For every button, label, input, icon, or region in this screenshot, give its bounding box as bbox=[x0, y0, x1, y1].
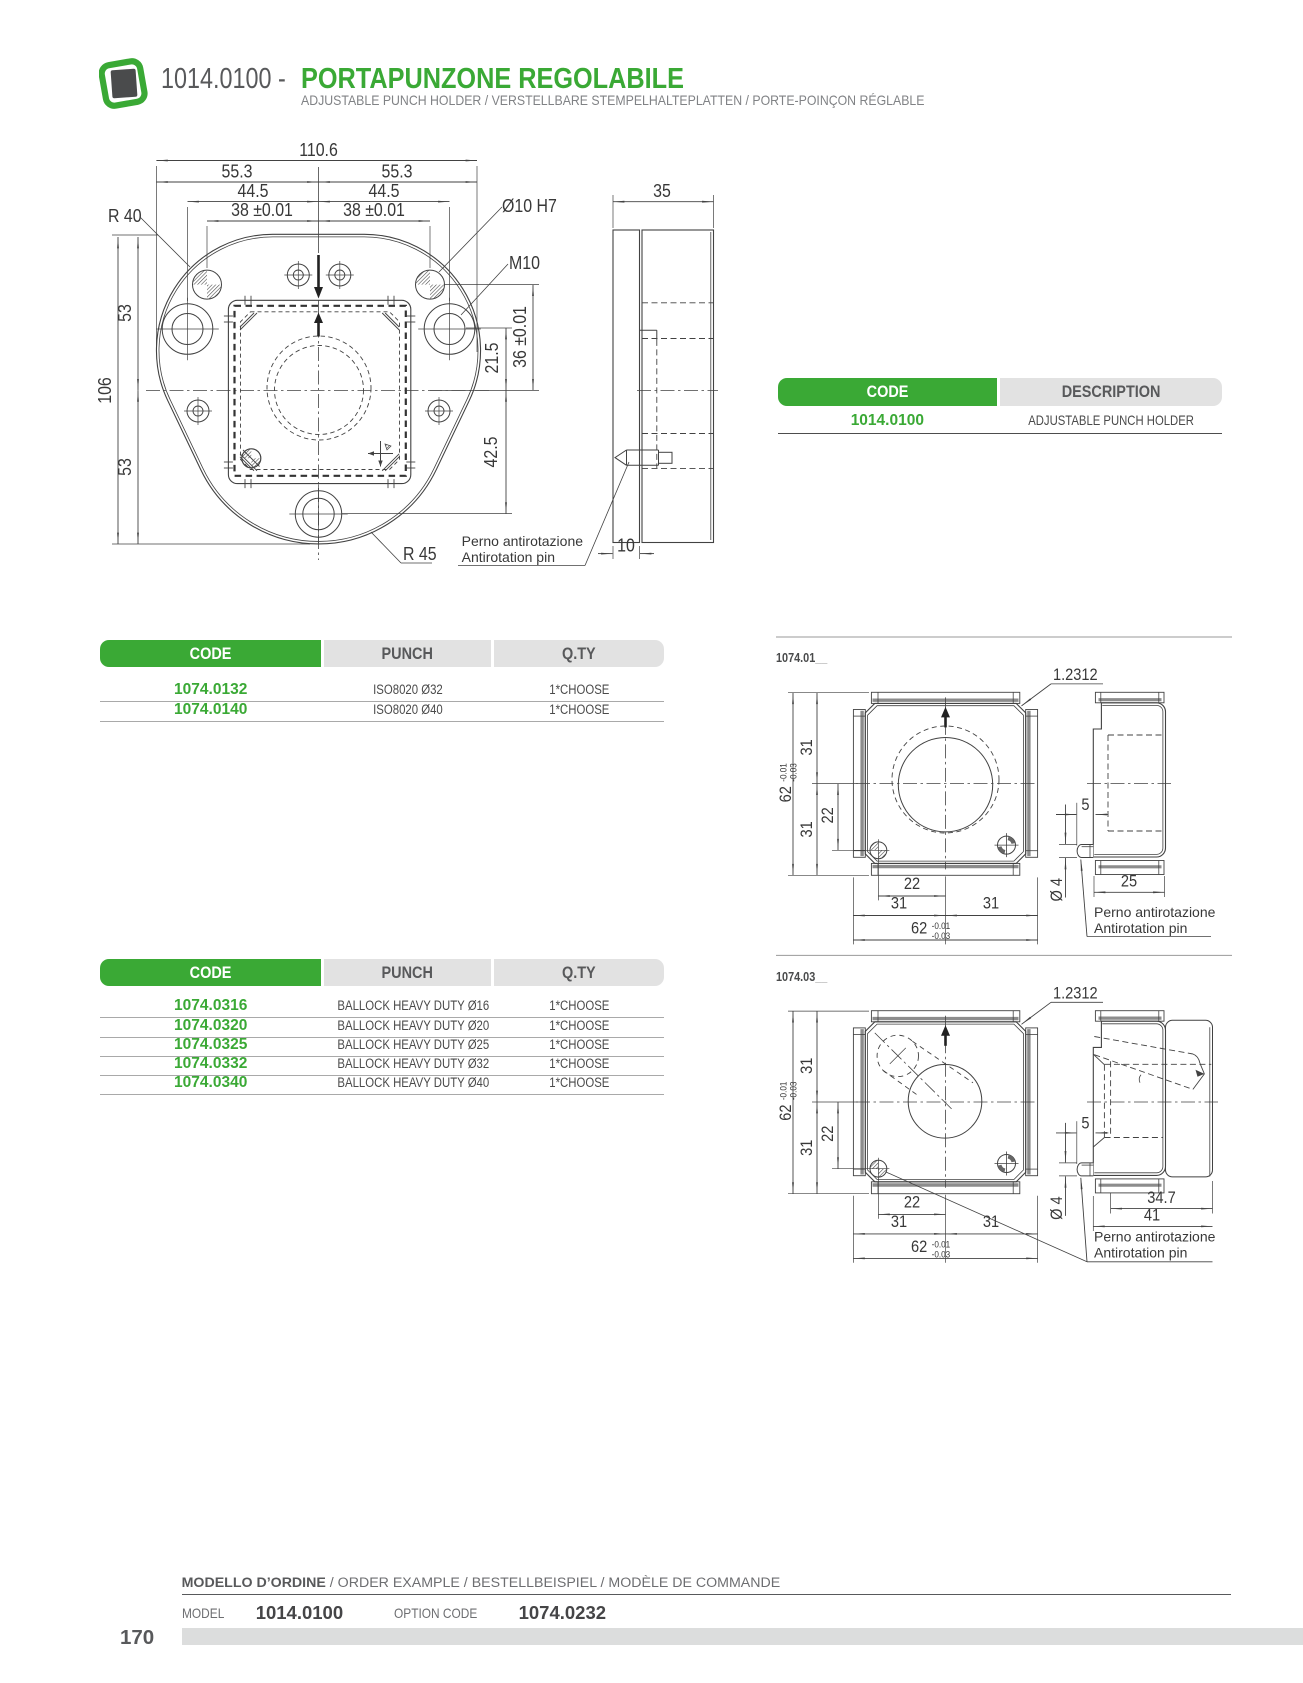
svg-text:41: 41 bbox=[1144, 1207, 1160, 1225]
svg-text:Perno antirotazione: Perno antirotazione bbox=[1094, 1229, 1216, 1245]
svg-text:-0.03: -0.03 bbox=[932, 930, 951, 941]
svg-text:R 45: R 45 bbox=[403, 543, 437, 564]
svg-text:10: 10 bbox=[617, 534, 635, 555]
svg-text:M10: M10 bbox=[509, 252, 540, 273]
svg-text:31: 31 bbox=[798, 739, 816, 755]
svg-text:53: 53 bbox=[114, 458, 135, 476]
svg-text:Ø 4: Ø 4 bbox=[1048, 1196, 1066, 1220]
svg-text:62: 62 bbox=[911, 1238, 927, 1256]
svg-text:36 ±0.01: 36 ±0.01 bbox=[509, 306, 530, 368]
svg-text:22: 22 bbox=[819, 1126, 837, 1142]
svg-text:31: 31 bbox=[798, 1140, 816, 1156]
svg-text:21.5: 21.5 bbox=[481, 343, 502, 374]
svg-text:31: 31 bbox=[798, 1058, 816, 1074]
svg-text:53: 53 bbox=[114, 304, 135, 322]
svg-text:Ø 4: Ø 4 bbox=[1048, 878, 1066, 902]
svg-text:106: 106 bbox=[95, 377, 115, 404]
svg-text:Antirotation pin: Antirotation pin bbox=[1094, 920, 1187, 936]
svg-text:Perno antirotazione: Perno antirotazione bbox=[462, 533, 584, 549]
svg-text:Antirotation pin: Antirotation pin bbox=[462, 549, 555, 565]
svg-text:Ø10 H7: Ø10 H7 bbox=[502, 195, 557, 216]
svg-text:1074.01__: 1074.01__ bbox=[776, 650, 828, 665]
svg-text:1.2312: 1.2312 bbox=[1053, 666, 1098, 684]
svg-text:62: 62 bbox=[777, 1104, 795, 1120]
svg-text:35: 35 bbox=[653, 180, 671, 201]
svg-text:-0.03: -0.03 bbox=[788, 763, 799, 782]
svg-text:38 ±0.01: 38 ±0.01 bbox=[231, 199, 293, 220]
svg-text:55.3: 55.3 bbox=[382, 160, 413, 181]
svg-text:5: 5 bbox=[1081, 1114, 1089, 1132]
svg-text:-0.03: -0.03 bbox=[788, 1081, 799, 1100]
svg-text:1074.03__: 1074.03__ bbox=[776, 969, 828, 984]
svg-text:R 40: R 40 bbox=[108, 205, 142, 226]
svg-text:110.6: 110.6 bbox=[299, 139, 338, 160]
svg-text:1.2312: 1.2312 bbox=[1053, 984, 1098, 1002]
svg-text:Perno antirotazione: Perno antirotazione bbox=[1094, 904, 1216, 920]
svg-text:62: 62 bbox=[777, 786, 795, 802]
svg-text:25: 25 bbox=[1121, 873, 1137, 891]
svg-text:31: 31 bbox=[983, 894, 999, 912]
svg-text:31: 31 bbox=[891, 1213, 907, 1231]
svg-text:42.5: 42.5 bbox=[480, 437, 501, 468]
svg-text:62: 62 bbox=[911, 919, 927, 937]
svg-text:34.7: 34.7 bbox=[1147, 1189, 1176, 1207]
svg-text:5: 5 bbox=[1081, 796, 1089, 814]
svg-text:22: 22 bbox=[819, 807, 837, 823]
svg-text:38 ±0.01: 38 ±0.01 bbox=[343, 199, 405, 220]
svg-text:31: 31 bbox=[798, 821, 816, 837]
svg-text:-0.03: -0.03 bbox=[932, 1249, 951, 1260]
svg-text:55.3: 55.3 bbox=[222, 160, 253, 181]
svg-text:31: 31 bbox=[983, 1213, 999, 1231]
svg-text:22: 22 bbox=[904, 1193, 920, 1211]
svg-text:Antirotation pin: Antirotation pin bbox=[1094, 1245, 1187, 1261]
svg-text:31: 31 bbox=[891, 894, 907, 912]
svg-text:22: 22 bbox=[904, 875, 920, 893]
